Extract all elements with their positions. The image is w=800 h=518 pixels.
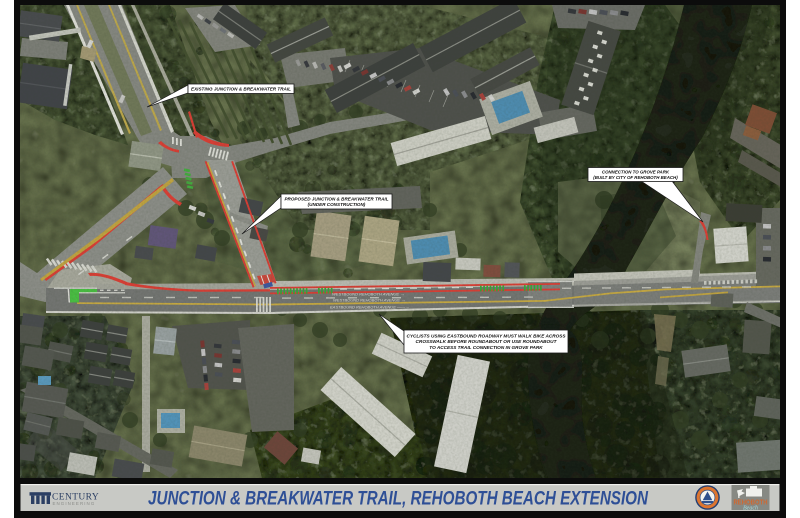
svg-text:CONNECTION TO GROVE PARK: CONNECTION TO GROVE PARK bbox=[602, 169, 670, 174]
svg-text:EXISTING JUNCTION & BREAKWATER: EXISTING JUNCTION & BREAKWATER TRAIL bbox=[191, 86, 291, 91]
svg-text:ENGINEERING: ENGINEERING bbox=[53, 501, 96, 506]
svg-text:Beach: Beach bbox=[743, 506, 758, 512]
svg-text:CROSSWALK BEFORE ROUNDABOUT OR: CROSSWALK BEFORE ROUNDABOUT OR USE ROUND… bbox=[416, 339, 558, 344]
svg-text:PROPOSED JUNCTION & BREAKWATER: PROPOSED JUNCTION & BREAKWATER TRAIL bbox=[284, 196, 388, 201]
svg-text:CYCLISTS USING EASTBOUND ROADW: CYCLISTS USING EASTBOUND ROADWAY MUST WA… bbox=[406, 333, 566, 338]
svg-text:TO ACCESS TRAIL CONNECTION IN: TO ACCESS TRAIL CONNECTION IN GROVE PARK bbox=[429, 345, 543, 350]
svg-text:(UNDER CONSTRUCTION): (UNDER CONSTRUCTION) bbox=[308, 202, 366, 207]
svg-text:(BUILT BY CITY OF REHOBOTH BEA: (BUILT BY CITY OF REHOBOTH BEACH) bbox=[593, 175, 678, 180]
svg-text:JUNCTION & BREAKWATER TRAIL, R: JUNCTION & BREAKWATER TRAIL, REHOBOTH BE… bbox=[148, 488, 649, 510]
